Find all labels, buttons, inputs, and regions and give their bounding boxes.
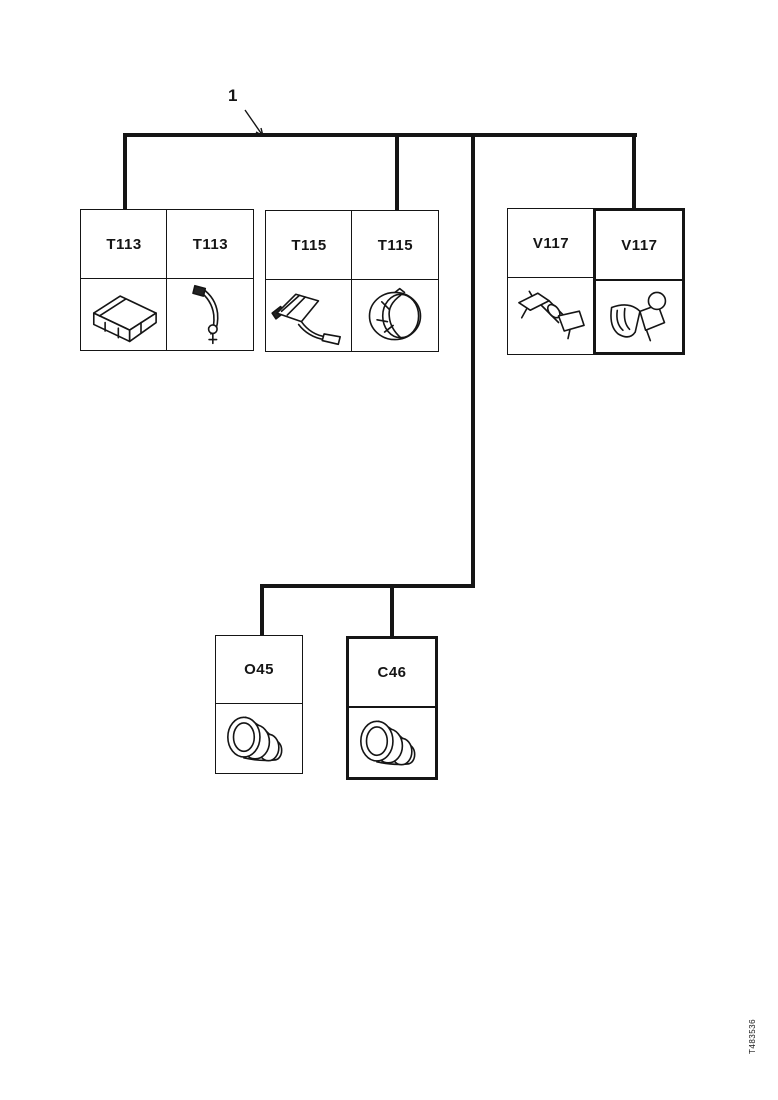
drawing-code: T483536 bbox=[748, 1004, 757, 1054]
callout-1-label[interactable]: 1 bbox=[228, 86, 237, 106]
component-cell-t113-b[interactable]: T113 bbox=[166, 209, 254, 351]
connector-group-t113: T113 T113 bbox=[80, 209, 254, 351]
component-cell-v117-a[interactable]: V117 bbox=[507, 208, 595, 355]
cable-sensor-icon bbox=[167, 279, 253, 350]
component-cell-v117-b[interactable]: V117 bbox=[593, 208, 685, 355]
component-cell-o45[interactable]: O45 bbox=[215, 635, 303, 774]
component-label: V117 bbox=[508, 209, 594, 278]
rectangular-connector-icon bbox=[81, 279, 167, 350]
cylindrical-connector-icon bbox=[216, 704, 302, 773]
component-label: T113 bbox=[167, 210, 253, 279]
harness-trunk-line bbox=[471, 133, 475, 588]
component-cell-t113-a[interactable]: T113 bbox=[80, 209, 168, 351]
component-label: V117 bbox=[596, 211, 682, 281]
lower-branch-line bbox=[260, 584, 475, 588]
branch-line-c46 bbox=[390, 584, 394, 638]
component-label: O45 bbox=[216, 636, 302, 704]
branch-line-t115 bbox=[395, 133, 399, 212]
round-connector-icon bbox=[352, 280, 438, 351]
lower-box-c46: C46 bbox=[346, 636, 438, 780]
cylindrical-connector-icon bbox=[349, 708, 435, 777]
component-label: T115 bbox=[266, 211, 352, 280]
component-cell-t115-a[interactable]: T115 bbox=[265, 210, 353, 352]
harness-bus-line bbox=[125, 133, 637, 137]
component-cell-c46[interactable]: C46 bbox=[346, 636, 438, 780]
solenoid-valve-icon bbox=[596, 281, 682, 352]
component-label: T113 bbox=[81, 210, 167, 279]
component-label: T115 bbox=[352, 211, 438, 280]
connector-group-t115: T115 T115 bbox=[265, 210, 439, 352]
bracket-sensor-icon bbox=[266, 280, 352, 351]
branch-line-t113 bbox=[123, 133, 127, 211]
component-cell-t115-b[interactable]: T115 bbox=[351, 210, 439, 352]
connector-group-v117: V117 V117 bbox=[507, 208, 685, 355]
callout-1-leader-line bbox=[240, 104, 272, 142]
lower-box-o45: O45 bbox=[215, 635, 303, 774]
valve-assembly-icon bbox=[508, 278, 594, 349]
branch-line-v117 bbox=[632, 133, 636, 212]
branch-line-o45 bbox=[260, 584, 264, 637]
component-label: C46 bbox=[349, 639, 435, 708]
